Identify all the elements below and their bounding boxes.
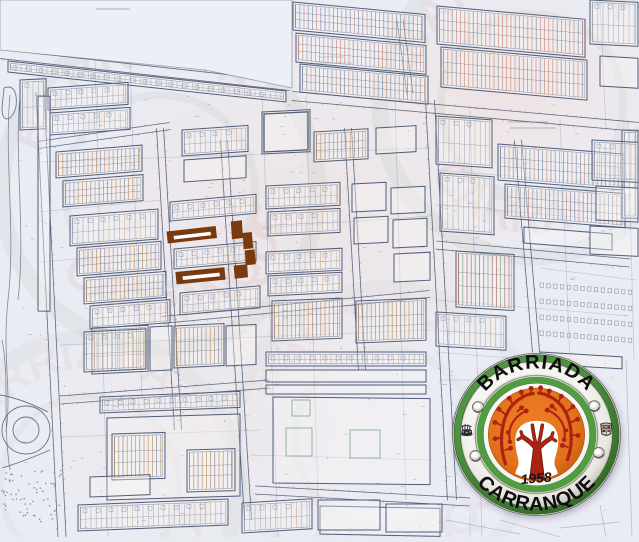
svg-text:1958: 1958 <box>520 470 553 487</box>
